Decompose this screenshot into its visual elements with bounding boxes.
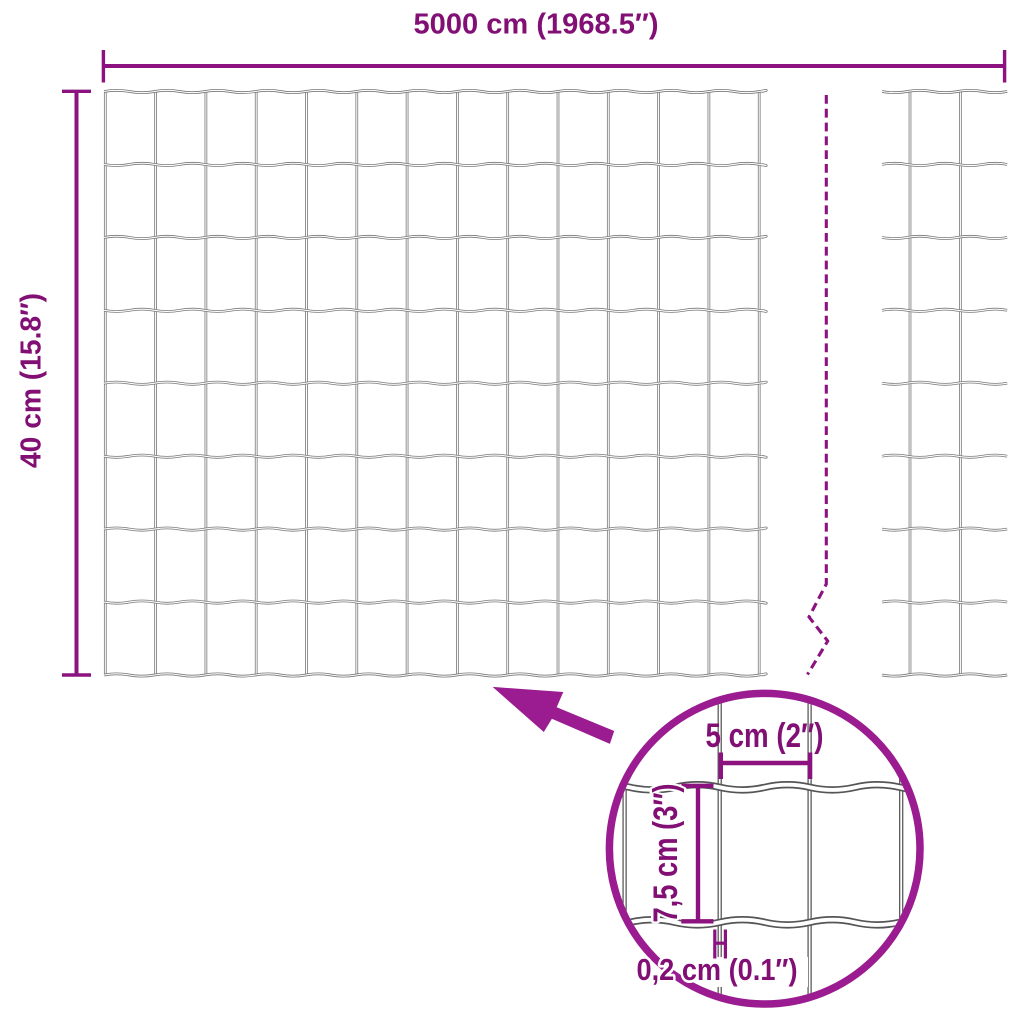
svg-text:5000 cm (1968.5″): 5000 cm (1968.5″): [414, 9, 659, 41]
svg-text:7,5 cm (3″): 7,5 cm (3″): [647, 784, 685, 923]
svg-text:40 cm (15.8″): 40 cm (15.8″): [16, 293, 48, 468]
svg-text:0,2 cm (0.1″): 0,2 cm (0.1″): [637, 952, 798, 987]
svg-text:5 cm (2″): 5 cm (2″): [706, 717, 824, 755]
